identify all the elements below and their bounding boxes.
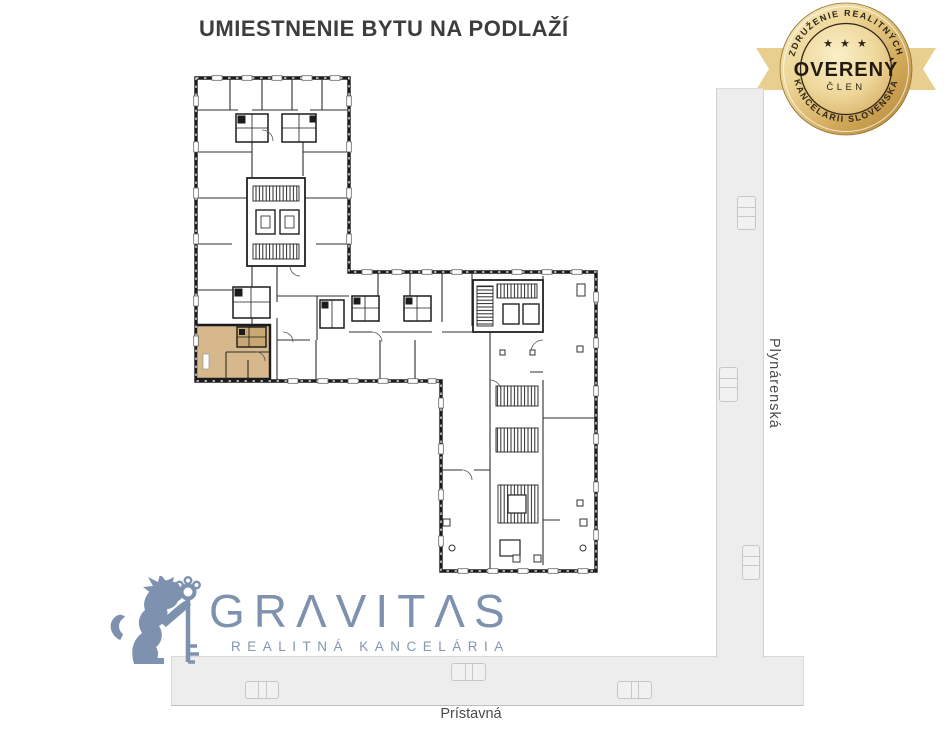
street-label-pristavna: Prístavná — [406, 706, 536, 722]
car-icon — [245, 681, 279, 699]
car-icon — [742, 545, 760, 580]
page: UMIESTNENIE BYTU NA PODLAŽÍ ZDRUŽENIE RE… — [0, 0, 946, 734]
brand-subtitle: REALITNÁ KANCELÁRIA — [231, 639, 510, 654]
badge-label: OVERENÝ — [794, 57, 899, 81]
highlighted-apartment — [196, 325, 270, 379]
car-icon — [719, 367, 738, 402]
car-icon — [737, 196, 756, 230]
apartment-door — [203, 354, 209, 369]
lion-key-logo-icon — [106, 576, 206, 666]
street-label-plynarenska: Plynárenská — [766, 338, 782, 429]
brand-name: GRΛVITΛS — [209, 584, 514, 638]
badge-sublabel: ČLEN — [826, 82, 865, 93]
car-icon — [451, 663, 486, 681]
page-title: UMIESTNENIE BYTU NA PODLAŽÍ — [199, 16, 569, 42]
floor-plan — [185, 68, 605, 580]
key-icon — [176, 577, 199, 662]
verified-member-badge: ZDRUŽENIE REALITNÝCH KANCELÁRIÍ SLOVENSK… — [754, 0, 939, 140]
car-icon — [617, 681, 652, 699]
badge-stars: ★ ★ ★ — [823, 38, 869, 50]
